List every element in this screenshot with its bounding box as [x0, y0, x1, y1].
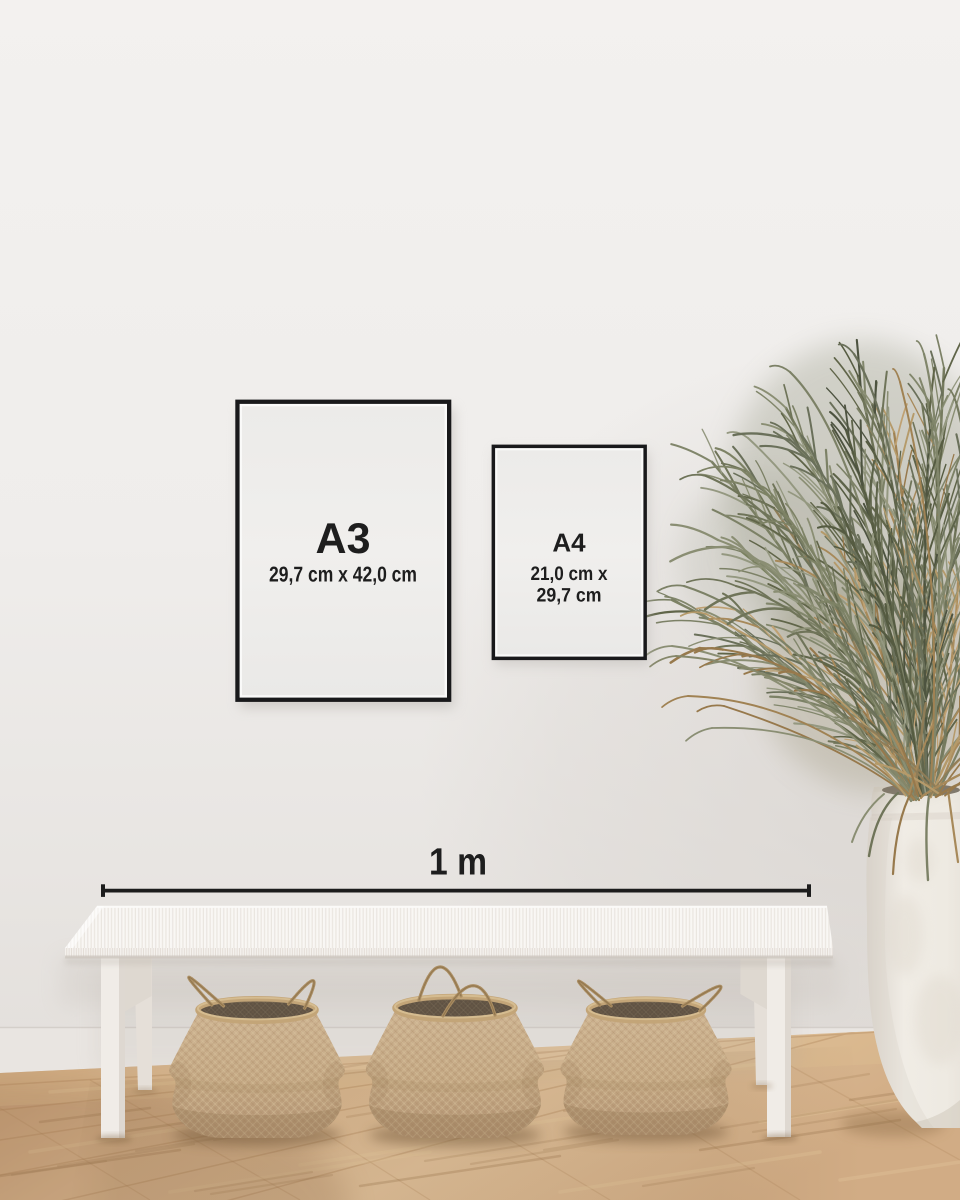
svg-text:A4: A4 — [552, 528, 586, 558]
svg-text:21,0 cm x: 21,0 cm x — [531, 563, 608, 585]
svg-text:29,7 cm x 42,0 cm: 29,7 cm x 42,0 cm — [269, 563, 417, 587]
svg-text:1 m: 1 m — [429, 842, 487, 884]
svg-text:A3: A3 — [316, 515, 371, 563]
svg-text:29,7 cm: 29,7 cm — [537, 585, 602, 607]
